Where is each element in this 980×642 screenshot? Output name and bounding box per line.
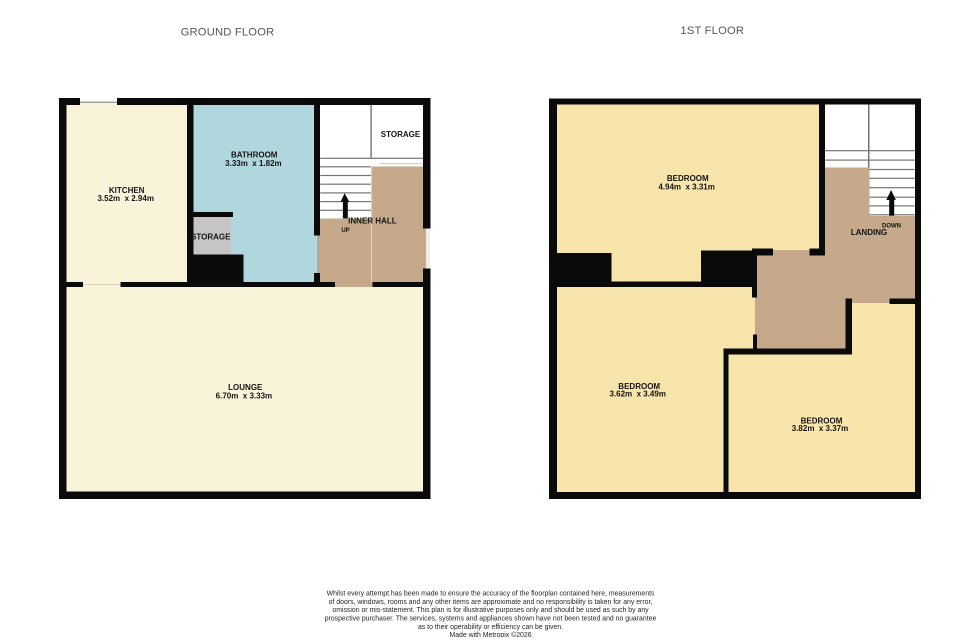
svg-text:prospective purchaser. The ser: prospective purchaser. The services, sys…: [325, 616, 657, 623]
svg-text:1ST FLOOR: 1ST FLOOR: [680, 25, 744, 37]
svg-text:omission or mis-statement. Thi: omission or mis-statement. This plan is …: [332, 607, 649, 614]
svg-text:3.82m x 3.37m: 3.82m x 3.37m: [792, 424, 848, 433]
svg-text:UP: UP: [341, 228, 349, 234]
svg-text:3.52m x 2.94m: 3.52m x 2.94m: [97, 194, 153, 203]
svg-text:6.70m x 3.33m: 6.70m x 3.33m: [216, 392, 272, 401]
svg-text:as to their operability or eff: as to their operability or efficiency ca…: [418, 624, 563, 631]
svg-text:Whilst every attempt has been: Whilst every attempt has been made to en…: [327, 590, 655, 597]
svg-text:Made with Metropix ©2026: Made with Metropix ©2026: [449, 631, 531, 637]
svg-text:3.62m x 3.49m: 3.62m x 3.49m: [609, 389, 665, 398]
svg-text:4.94m x 3.31m: 4.94m x 3.31m: [658, 183, 714, 192]
svg-text:STORAGE: STORAGE: [381, 130, 421, 139]
svg-text:INNER HALL: INNER HALL: [348, 217, 397, 226]
svg-text:GROUND FLOOR: GROUND FLOOR: [181, 26, 275, 38]
svg-text:3.33m x 1.82m: 3.33m x 1.82m: [225, 159, 281, 168]
svg-text:of doors, windows, rooms and a: of doors, windows, rooms and any other i…: [329, 599, 653, 606]
svg-text:STORAGE: STORAGE: [191, 233, 231, 242]
svg-text:DOWN: DOWN: [882, 224, 901, 230]
